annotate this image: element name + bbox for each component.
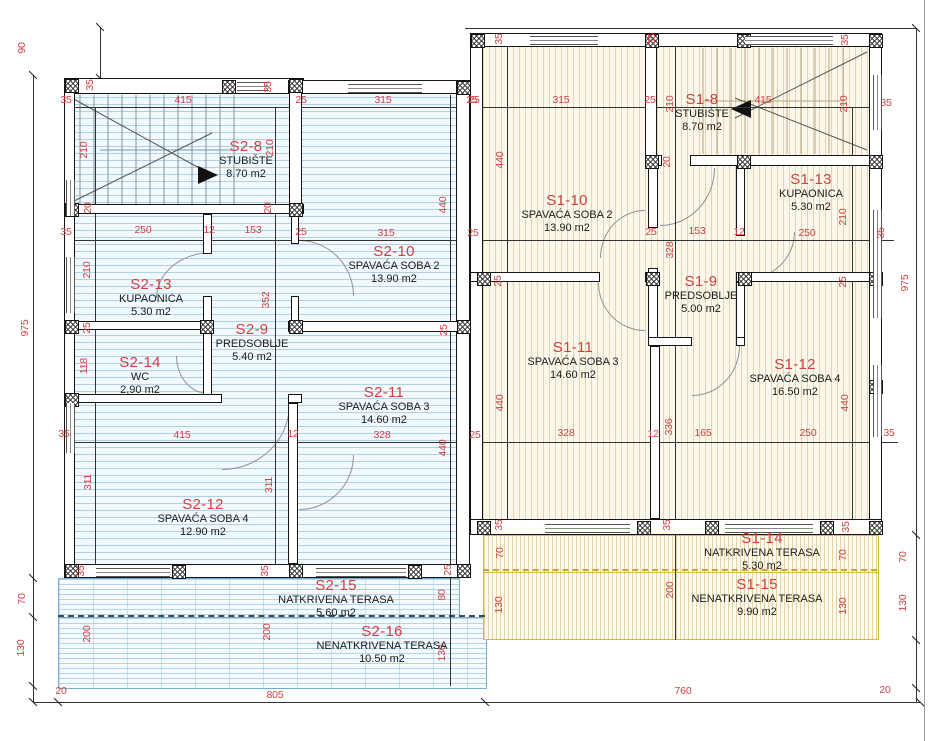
room-area: 12.90 m2 — [157, 526, 248, 539]
column-hatch — [65, 320, 79, 334]
column-hatch — [869, 521, 883, 535]
room-id: S2-13 — [119, 276, 183, 293]
dimension-line — [852, 107, 853, 535]
dimension-line — [33, 702, 921, 703]
column-hatch — [646, 272, 660, 286]
dimension-label: 12 — [733, 226, 744, 238]
dimension-label: 25 — [469, 429, 480, 441]
dimension-label: 118 — [78, 358, 90, 374]
dimension-label: 352 — [260, 292, 272, 309]
room-label-S2-10: S2-10SPAVAĆA SOBA 213.90 m2 — [348, 243, 439, 285]
dimension-line — [100, 27, 101, 78]
dimension-label: 35 — [839, 34, 851, 45]
window — [873, 210, 882, 318]
room-id: S1-12 — [749, 356, 840, 373]
column-hatch — [289, 203, 303, 217]
dimension-label: 35 — [84, 79, 96, 90]
dimension-label: 35 — [58, 428, 69, 440]
dimension-label: 80 — [436, 589, 448, 600]
room-label-S1-10: S1-10SPAVAĆA SOBA 213.90 m2 — [521, 192, 612, 234]
wall — [736, 337, 745, 346]
dimension-label: 153 — [245, 224, 262, 236]
dimension-label: 315 — [378, 227, 395, 239]
dimension-label: 25 — [295, 94, 306, 106]
room-name: KUPAONICA — [119, 293, 183, 306]
wall — [648, 337, 692, 346]
dimension-label: 440 — [437, 440, 449, 457]
room-name: STUBIŠTE — [219, 155, 273, 168]
dimension-label: 25 — [442, 564, 454, 575]
dimension-label: 70 — [897, 551, 909, 562]
drawing-frame — [924, 0, 925, 741]
dimension-label: 35 — [259, 565, 271, 576]
dimension-label: 25 — [645, 226, 656, 238]
dimension-label: 328 — [664, 242, 676, 259]
column-hatch — [737, 155, 751, 169]
dimension-label: 311 — [82, 474, 94, 490]
room-id: S2-12 — [157, 496, 248, 513]
room-name: SPAVAĆA SOBA 2 — [348, 260, 439, 273]
room-label-S1-11: S1-11SPAVAĆA SOBA 314.60 m2 — [527, 339, 618, 381]
dimension-label: 35 — [840, 521, 852, 532]
wall — [736, 272, 882, 282]
room-label-S1-8: S1-8STUBIŠTE8.70 m2 — [675, 91, 729, 133]
column-hatch — [637, 521, 651, 535]
room-name: NATKRIVENA TERASA — [704, 547, 820, 560]
window — [96, 568, 170, 577]
dimension-line — [916, 28, 917, 702]
room-name: WC — [119, 371, 161, 384]
column-hatch — [222, 80, 236, 94]
dimension-line — [507, 46, 508, 535]
room-area: 14.60 m2 — [527, 369, 618, 382]
dimension-label: 153 — [689, 225, 706, 237]
room-label-S2-12: S2-12SPAVAĆA SOBA 412.90 m2 — [157, 496, 248, 538]
dimension-label: 20 — [262, 202, 274, 213]
column-hatch — [65, 79, 79, 93]
dimension-label: 20 — [55, 685, 66, 697]
room-label-S2-14: S2-14WC2,90 m2 — [119, 354, 161, 396]
window — [745, 36, 833, 45]
room-name: NATKRIVENA TERASA — [278, 594, 394, 607]
window — [348, 84, 422, 93]
dimension-label: 25 — [468, 94, 479, 106]
dimension-label: 250 — [800, 427, 817, 439]
room-label-S1-15: S1-15NENATKRIVENA TERASA9.90 m2 — [691, 576, 822, 618]
room-id: S1-13 — [779, 171, 843, 188]
room-name: NENATKRIVENA TERASA — [691, 593, 822, 606]
dimension-label: 35 — [60, 94, 71, 106]
dimension-label: 25 — [467, 227, 478, 239]
dimension-label: 35 — [646, 33, 658, 44]
dimension-label: 311 — [263, 477, 275, 493]
dimension-label: 130 — [15, 640, 27, 657]
floor-plan-canvas: 9097535415353525315252102102020352501215… — [0, 0, 938, 741]
dimension-label: 35 — [661, 519, 673, 530]
dimension-label: 25 — [295, 226, 306, 238]
room-id: S1-15 — [691, 576, 822, 593]
dimension-label: 328 — [374, 429, 391, 441]
dimension-label: 200 — [81, 626, 93, 643]
dimension-label: 20 — [879, 684, 890, 696]
room-area: 5.40 m2 — [216, 351, 289, 364]
room-label-S2-11: S2-11SPAVAĆA SOBA 314.60 m2 — [338, 384, 429, 426]
dimension-label: 25 — [492, 275, 504, 286]
dimension-label: 12 — [203, 224, 214, 236]
dimension-label: 210 — [838, 96, 850, 113]
room-id: S2-8 — [219, 138, 273, 155]
dimension-label: 12 — [647, 428, 658, 440]
dimension-label: 20 — [661, 156, 673, 167]
room-id: S2-9 — [216, 321, 289, 338]
room-area: 13.90 m2 — [348, 273, 439, 286]
window — [530, 36, 598, 45]
dimension-label: 35 — [262, 81, 274, 92]
wall — [288, 394, 302, 403]
column-hatch — [869, 34, 883, 48]
room-id: S1-10 — [521, 192, 612, 209]
dimension-label: 200 — [664, 582, 676, 599]
dimension-label: 35 — [875, 227, 887, 238]
dimension-label: 25 — [81, 322, 93, 333]
wall — [203, 296, 212, 321]
column-hatch — [457, 81, 471, 95]
room-name: KUPAONICA — [779, 188, 843, 201]
room-area: 16.50 m2 — [749, 386, 840, 399]
dimension-label: 70 — [16, 593, 28, 604]
column-hatch — [289, 320, 303, 334]
column-hatch — [200, 320, 214, 334]
room-area: 14.60 m2 — [338, 414, 429, 427]
window — [316, 568, 406, 577]
room-area: 5.00 m2 — [665, 303, 738, 316]
room-area: 10.50 m2 — [316, 653, 447, 666]
column-hatch — [457, 564, 471, 578]
wall — [690, 155, 882, 166]
room-area: 5.30 m2 — [119, 306, 183, 319]
dimension-label: 315 — [553, 94, 570, 106]
column-hatch — [408, 565, 422, 579]
dimension-label: 35 — [75, 565, 87, 576]
room-id: S2-15 — [278, 577, 394, 594]
dimension-label: 415 — [174, 429, 191, 441]
room-area: 13.90 m2 — [521, 222, 612, 235]
window — [545, 524, 630, 533]
room-name: SPAVAĆA SOBA 3 — [527, 356, 618, 369]
room-name: SPAVAĆA SOBA 4 — [157, 513, 248, 526]
column-hatch — [738, 272, 752, 286]
dimension-label: 70 — [494, 547, 506, 558]
column-hatch — [869, 155, 883, 169]
dimension-label: 336 — [663, 419, 675, 436]
room-label-S2-9: S2-9PREDSOBLJE5.40 m2 — [216, 321, 289, 363]
column-hatch — [172, 565, 186, 579]
room-area: 5.30 m2 — [779, 201, 843, 214]
dimension-label: 440 — [494, 395, 506, 412]
dimension-label: 328 — [558, 427, 575, 439]
stair-direction-arrow — [198, 166, 218, 184]
window — [873, 365, 882, 437]
dimension-label: 25 — [644, 94, 655, 106]
terrace-s2-15 — [58, 578, 460, 619]
room-name: PREDSOBLJE — [665, 290, 738, 303]
dimension-label: 130 — [837, 598, 849, 615]
dimension-line — [465, 28, 917, 29]
room-label-S2-16: S2-16NENATKRIVENA TERASA10.50 m2 — [316, 623, 447, 665]
column-hatch — [645, 155, 659, 169]
room-name: PREDSOBLJE — [216, 338, 289, 351]
dimension-label: 130 — [897, 595, 909, 612]
dimension-label: 440 — [494, 152, 506, 169]
dimension-label: 90 — [16, 42, 28, 53]
terrace-boundary-dashed — [58, 615, 485, 617]
dimension-label: 200 — [261, 624, 273, 641]
room-id: S2-16 — [316, 623, 447, 640]
column-hatch — [477, 521, 491, 535]
dimension-label: 25 — [438, 324, 450, 335]
dimension-label: 975 — [19, 320, 31, 337]
room-name: SPAVAĆA SOBA 4 — [749, 373, 840, 386]
room-label-S1-9: S1-9PREDSOBLJE5.00 m2 — [665, 273, 738, 315]
dimension-label: 210 — [81, 262, 93, 279]
column-hatch — [289, 79, 303, 93]
room-area: 2,90 m2 — [119, 384, 161, 397]
dimension-label: 415 — [755, 94, 772, 106]
dimension-label: 12 — [287, 428, 298, 440]
room-area: 9.90 m2 — [691, 606, 822, 619]
room-id: S1-14 — [704, 530, 820, 547]
room-label-S2-15: S2-15NATKRIVENA TERASA5.60 m2 — [278, 577, 394, 619]
room-id: S1-9 — [665, 273, 738, 290]
dimension-line — [95, 107, 96, 565]
room-id: S2-14 — [119, 354, 161, 371]
dimension-label: 415 — [175, 94, 192, 106]
room-label-S1-14: S1-14NATKRIVENA TERASA5.30 m2 — [704, 530, 820, 572]
dimension-label: 35 — [493, 33, 505, 44]
dimension-label: 20 — [82, 202, 94, 213]
column-hatch — [471, 34, 485, 48]
room-id: S2-11 — [338, 384, 429, 401]
column-hatch — [289, 564, 303, 578]
dimension-label: 165 — [695, 427, 712, 439]
dimension-label: 440 — [839, 395, 851, 412]
dimension-label: 440 — [437, 197, 449, 214]
dimension-label: 130 — [493, 597, 505, 614]
room-area: 8.70 m2 — [219, 168, 273, 181]
room-id: S1-11 — [527, 339, 618, 356]
dimension-label: 25 — [837, 276, 849, 287]
wall — [648, 166, 658, 228]
dimension-label: 760 — [675, 685, 692, 697]
dimension-label: 35 — [883, 427, 894, 439]
room-area: 5.30 m2 — [704, 560, 820, 573]
dimension-line — [450, 95, 451, 686]
window — [66, 257, 75, 313]
dimension-label: 35 — [60, 226, 71, 238]
dimension-label: 975 — [899, 275, 911, 292]
room-area: 5.60 m2 — [278, 607, 394, 620]
room-id: S1-8 — [675, 91, 729, 108]
room-label-S2-8: S2-8STUBIŠTE8.70 m2 — [219, 138, 273, 180]
room-id: S2-10 — [348, 243, 439, 260]
column-hatch — [477, 272, 491, 286]
column-hatch — [457, 320, 471, 334]
dimension-label: 805 — [267, 689, 284, 701]
room-name: SPAVAĆA SOBA 2 — [521, 209, 612, 222]
dimension-label: 70 — [837, 549, 849, 560]
room-label-S2-13: S2-13KUPAONICA5.30 m2 — [119, 276, 183, 318]
dimension-label: 210 — [78, 142, 90, 159]
dimension-label: 315 — [375, 94, 392, 106]
dimension-label: 35 — [880, 97, 891, 109]
room-label-S1-12: S1-12SPAVAĆA SOBA 416.50 m2 — [749, 356, 840, 398]
dimension-label: 35 — [493, 519, 505, 530]
room-name: STUBIŠTE — [675, 108, 729, 121]
dimension-label: 250 — [799, 227, 816, 239]
room-area: 8.70 m2 — [675, 121, 729, 134]
room-label-S1-13: S1-13KUPAONICA5.30 m2 — [779, 171, 843, 213]
dimension-line — [33, 75, 34, 702]
room-name: NENATKRIVENA TERASA — [316, 640, 447, 653]
column-hatch — [820, 521, 834, 535]
dimension-label: 250 — [135, 224, 152, 236]
room-name: SPAVAĆA SOBA 3 — [338, 401, 429, 414]
window — [66, 180, 75, 216]
